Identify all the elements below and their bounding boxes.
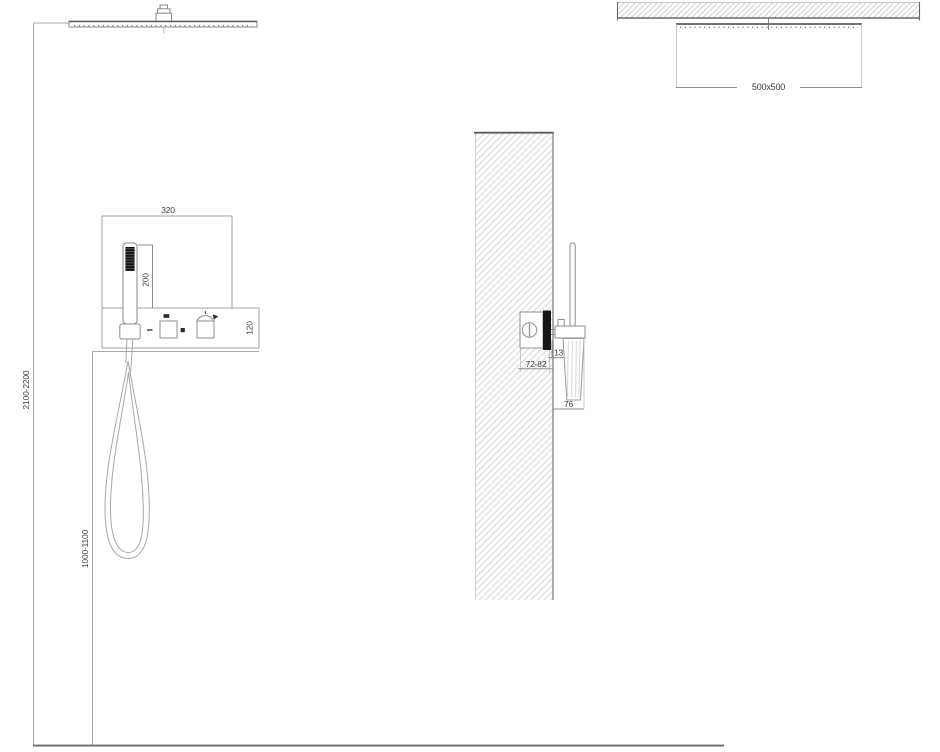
hose-right-line	[131, 339, 133, 372]
ceiling-hatch	[617, 2, 920, 18]
mount-arm	[156, 13, 172, 21]
concealed-valve-side	[520, 311, 551, 351]
bracket-tab	[558, 320, 564, 327]
panel-outline	[102, 216, 232, 308]
dim-trim-thickness-label: 13	[554, 348, 564, 358]
hand-shower-front	[120, 243, 140, 339]
handset-spray-face	[125, 247, 134, 271]
dim-handset-height-label: 1000-1100	[80, 529, 90, 568]
handset-holder	[120, 324, 140, 339]
holder-bracket-side	[555, 326, 585, 338]
square-icon	[164, 314, 170, 318]
dot-icon	[181, 328, 185, 332]
trim-plate	[543, 311, 551, 351]
dim-handle-offset-label: 76	[564, 399, 574, 409]
ceiling-slab	[617, 2, 920, 21]
hose-inner-edge	[111, 372, 144, 553]
control-panel-front	[147, 311, 218, 338]
hose-loop	[105, 339, 149, 559]
dim-band-height-label: 120	[245, 321, 255, 335]
hand-shower-side	[551, 243, 585, 400]
arrow-head-icon	[213, 314, 218, 319]
dim-panel-width-label: 320	[161, 205, 175, 215]
overhead-shower-ceiling	[676, 19, 862, 31]
room-outline	[33, 23, 724, 746]
dim-head-size-label: 500x500	[752, 82, 785, 92]
handset-grip-side	[563, 339, 584, 401]
installation-drawing: 2100-2200 1000-1100 320 120	[0, 0, 940, 752]
diverter-button	[160, 321, 177, 338]
temperature-knob-button	[197, 321, 214, 338]
hose-left-line	[126, 339, 127, 363]
dim-overall-height-label: 2100-2200	[21, 370, 31, 409]
connector-flange	[158, 9, 171, 14]
front-view: 2100-2200 1000-1100 320 120	[21, 5, 724, 746]
dim-valve-recess-label: 72-82	[526, 359, 547, 369]
dim-head-size	[676, 24, 862, 88]
handset-rod-side	[570, 243, 575, 326]
dim-handset-length-label: 200	[141, 273, 151, 287]
overhead-shower-front	[69, 5, 257, 34]
ceiling-section-view: 500x500	[617, 2, 920, 92]
drawing-canvas: 2100-2200 1000-1100 320 120	[0, 0, 940, 752]
side-view: 72-82 13 76	[474, 132, 585, 600]
